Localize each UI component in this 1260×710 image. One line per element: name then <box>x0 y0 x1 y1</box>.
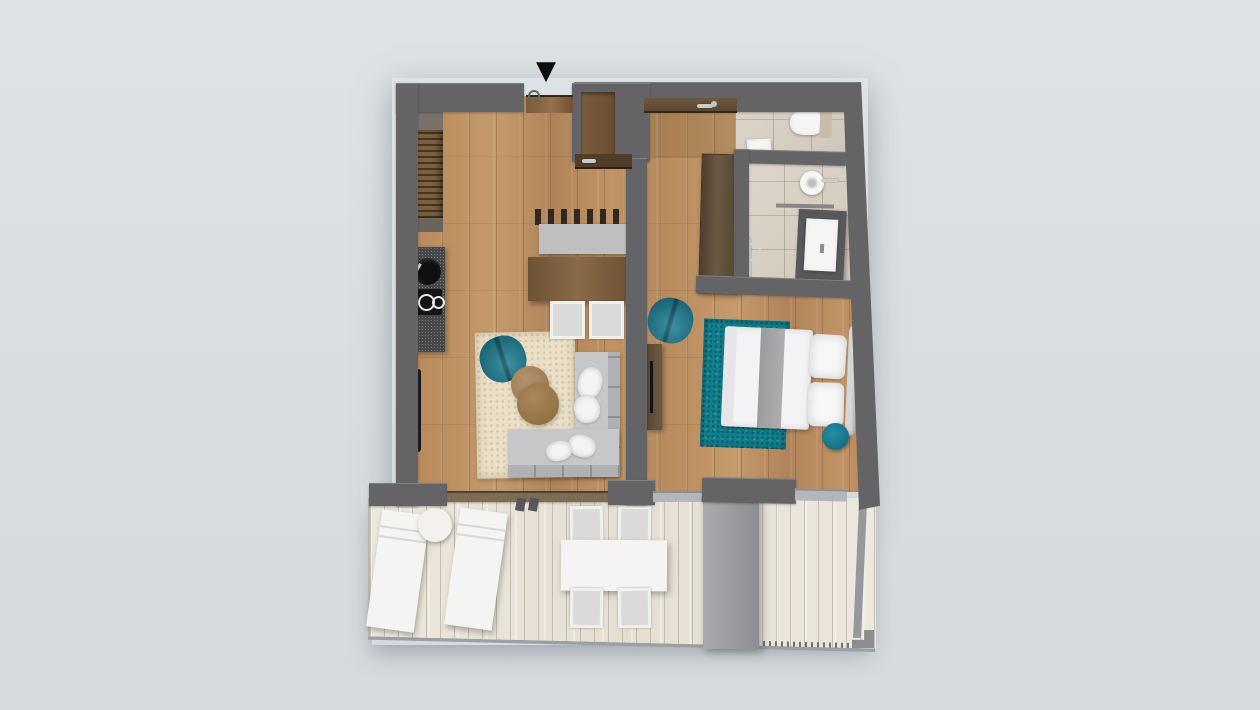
wall-interior-living-bedroom <box>626 158 647 505</box>
dining-bench-seat <box>539 224 626 254</box>
corner-sofa <box>506 349 620 479</box>
sink-faucet <box>820 244 824 253</box>
balcony-table <box>561 540 667 592</box>
entrance-door-handle <box>528 90 540 102</box>
bed-pillow <box>807 382 844 427</box>
wall-left <box>396 83 418 506</box>
kitchen-sink <box>414 258 441 285</box>
round-basin <box>800 171 824 195</box>
wall-wc-divider <box>734 149 846 166</box>
double-bed <box>719 318 862 438</box>
entry-open-door-inset <box>581 92 615 158</box>
teal-stool <box>822 423 849 450</box>
living-door-handle <box>582 159 596 163</box>
dining-bench-slats <box>535 209 628 225</box>
floor-plan: ▼ <box>0 0 1260 710</box>
dining-table <box>528 257 636 301</box>
hall-wardrobe-slats <box>414 130 443 218</box>
entrance-marker-icon: ▼ <box>536 58 556 84</box>
sliding-door-threshold-bedroom <box>795 488 847 501</box>
sofa-backrest-bottom <box>508 465 619 477</box>
wall-balcony-stub-left <box>369 483 447 506</box>
wall-balcony-stub-center <box>608 480 655 505</box>
toilet <box>790 110 823 135</box>
wall-balcony-stub-bedroom <box>702 477 796 504</box>
lounger-headrest-line <box>457 523 506 542</box>
balcony-chair <box>570 588 604 629</box>
wall-bathroom-left <box>734 149 749 293</box>
bed-pillow <box>809 334 848 380</box>
sliding-door-threshold-living <box>447 491 608 502</box>
bed-throw-band <box>757 328 785 429</box>
basin-arm <box>822 179 838 182</box>
dining-chair <box>550 301 585 339</box>
sideboard-handle <box>650 361 653 413</box>
hall-wardrobe-base <box>414 218 443 232</box>
balcony-chair <box>618 588 652 629</box>
bathroom-open-door-leaf <box>644 98 737 113</box>
dining-chair <box>589 301 624 339</box>
round-side-table <box>418 508 452 542</box>
sideboard <box>646 344 662 430</box>
sliding-door-threshold-mid <box>653 491 703 502</box>
cooktop-burner-small <box>432 296 445 309</box>
awning-panel <box>703 497 759 649</box>
bathroom-door-hinge-dot <box>711 101 717 107</box>
